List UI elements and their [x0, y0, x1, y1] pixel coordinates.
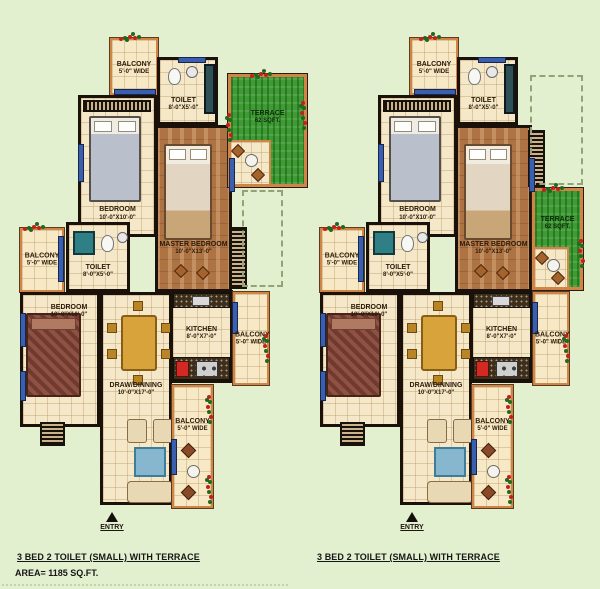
- bathtub-icon: [504, 64, 515, 114]
- window-icon: [232, 302, 238, 334]
- kitchen-balcony: BALCONY 5'-0" WIDE: [533, 292, 569, 385]
- window-icon: [478, 57, 506, 63]
- window-icon: [414, 89, 456, 95]
- wardrobe-icon: [83, 100, 151, 112]
- window-icon: [358, 236, 364, 282]
- room-label: BALCONY 5'-0" WIDE: [174, 417, 211, 434]
- toilet-wc-icon: [101, 235, 114, 252]
- room-label: MASTER BEDROOM 10'-0"X13'-0": [458, 240, 529, 257]
- plan-area-note: AREA= 1185 SQ.FT.: [15, 568, 98, 578]
- kitchen: KITCHEN 8'-0"X7'-0": [170, 290, 233, 383]
- planter-pot-icon: [181, 485, 197, 501]
- window-icon: [471, 439, 477, 475]
- stool-icon: [496, 266, 510, 280]
- chair-icon: [133, 301, 143, 311]
- master-bedroom: MASTER BEDROOM 10'-0"X13'-0": [455, 125, 532, 292]
- terrace-outline-dashed: [530, 75, 583, 185]
- wash-basin-icon: [186, 66, 198, 78]
- room-label: BALCONY 5'-0" WIDE: [474, 417, 511, 434]
- dining-table-icon: [421, 315, 457, 371]
- window-icon: [229, 158, 235, 192]
- sofa-icon: [427, 481, 473, 503]
- chair-icon: [107, 349, 117, 359]
- chair-icon: [133, 375, 143, 385]
- planter-pot-icon: [481, 485, 497, 501]
- room-label: TERRACE 62 SQFT.: [535, 215, 580, 232]
- window-icon: [529, 158, 535, 192]
- flower-planter-icon: [551, 186, 555, 190]
- double-bed-icon: [164, 144, 212, 240]
- toilet-wc-icon: [468, 68, 481, 85]
- stool-icon: [174, 264, 188, 278]
- red-cabinet-icon: [476, 361, 489, 377]
- bedroom-bottom: BEDROOM 10'-0"X10'-0": [320, 292, 400, 427]
- flower-planter-icon: [564, 334, 568, 338]
- flower-planter-icon: [32, 225, 36, 229]
- gas-stove-icon: [196, 361, 218, 377]
- patio-table-icon: [245, 154, 258, 167]
- window-icon: [114, 89, 156, 95]
- toilet-top: TOILET 8'-0"X5'-0": [157, 57, 218, 125]
- room-label: BALCONY 5'-0" WIDE: [22, 252, 62, 269]
- kitchen-sink-icon: [192, 296, 210, 306]
- room-label: BALCONY 5'-0" WIDE: [535, 330, 567, 347]
- chair-icon: [433, 375, 443, 385]
- armchair-icon: [153, 419, 173, 443]
- room-label: MASTER BEDROOM 10'-0"X13'-0": [158, 240, 229, 257]
- kitchen: KITCHEN 8'-0"X7'-0": [470, 290, 533, 383]
- toilet-wc-icon: [401, 235, 414, 252]
- armchair-icon: [127, 419, 147, 443]
- wardrobe-icon: [383, 100, 451, 112]
- flower-planter-icon: [264, 334, 268, 338]
- patio-chair-icon: [231, 144, 245, 158]
- chair-icon: [407, 349, 417, 359]
- floor-plan-sheet: { "palette": { "background": "#e3f0cf", …: [0, 0, 600, 589]
- toilet-middle: TOILET 8'-0"X5'-0": [366, 222, 430, 292]
- patio-table-icon: [487, 465, 500, 478]
- room-label: BALCONY 5'-0" WIDE: [322, 252, 362, 269]
- flower-planter-icon: [128, 35, 132, 39]
- room-label: KITCHEN 8'-0"X7'-0": [173, 325, 230, 342]
- draw-dining: DRAW/DINNING 10'-0"X17'-0": [100, 292, 172, 505]
- toilet-wc-icon: [168, 68, 181, 85]
- wash-basin-icon: [117, 232, 128, 243]
- entry-label: ENTRY: [90, 524, 134, 531]
- window-icon: [532, 302, 538, 334]
- patio-chair-icon: [251, 168, 265, 182]
- bedroom-top: BEDROOM 10'-0"X10'-0": [378, 95, 457, 237]
- room-label: TOILET 8'-0"X5'-0": [69, 263, 127, 280]
- window-icon: [171, 439, 177, 475]
- flower-planter-icon: [207, 395, 211, 399]
- kitchen-sink-icon: [492, 296, 510, 306]
- double-bed-icon: [89, 116, 141, 202]
- bedroom-bottom: BEDROOM 10'-0"X10'-0": [20, 292, 100, 427]
- terrace-outline-dashed: [242, 190, 283, 287]
- balcony-left: BALCONY 5'-0" WIDE: [320, 228, 364, 292]
- balcony-bottom: BALCONY 5'-0" WIDE: [472, 385, 513, 508]
- chair-icon: [433, 301, 443, 311]
- toilet-top: TOILET 8'-0"X5'-0": [457, 57, 518, 125]
- window-icon: [20, 371, 26, 401]
- flower-planter-icon: [301, 101, 305, 105]
- dining-table-icon: [121, 315, 157, 371]
- room-label: BEDROOM 10'-0"X10'-0": [81, 205, 154, 222]
- gas-stove-icon: [496, 361, 518, 377]
- room-label: BALCONY 5'-0" WIDE: [235, 330, 267, 347]
- balcony-top: BALCONY 5'-0" WIDE: [110, 38, 158, 95]
- balcony-top: BALCONY 5'-0" WIDE: [410, 38, 458, 95]
- window-icon: [58, 236, 64, 282]
- coffee-table-icon: [134, 447, 166, 477]
- shower-icon: [373, 231, 395, 255]
- double-bed-icon: [464, 144, 512, 240]
- stool-icon: [196, 266, 210, 280]
- divider: [2, 584, 288, 586]
- wash-basin-icon: [417, 232, 428, 243]
- flower-planter-icon: [207, 475, 211, 479]
- room-label: TOILET 8'-0"X5'-0": [369, 263, 427, 280]
- plan-caption-left: 3 BED 2 TOILET (SMALL) WITH TERRACE: [17, 552, 200, 562]
- window-icon: [78, 144, 84, 182]
- kitchen-counter-icon: [173, 293, 230, 308]
- terrace: TERRACE 62 SQFT.: [228, 74, 307, 187]
- room-label: TERRACE 62 SQFT.: [231, 109, 304, 126]
- flower-planter-icon: [579, 239, 583, 243]
- terrace-patio: [231, 140, 271, 184]
- chair-icon: [107, 323, 117, 333]
- master-bedroom: MASTER BEDROOM 10'-0"X13'-0": [155, 125, 232, 292]
- kitchen-counter-icon: [173, 357, 230, 380]
- kitchen-counter-icon: [473, 357, 530, 380]
- terrace: TERRACE 62 SQFT.: [532, 188, 583, 290]
- flower-planter-icon: [227, 113, 231, 117]
- stool-icon: [474, 264, 488, 278]
- flower-planter-icon: [259, 72, 263, 76]
- bathtub-icon: [204, 64, 215, 114]
- window-icon: [20, 313, 26, 347]
- flower-planter-icon: [507, 475, 511, 479]
- room-label: BEDROOM 10'-0"X10'-0": [381, 205, 454, 222]
- floor-plan-left: BALCONY 5'-0" WIDE TOILET 8'-0"X5'-0" BE…: [20, 38, 310, 538]
- draw-dining: DRAW/DINNING 10'-0"X17'-0": [400, 292, 472, 505]
- flower-planter-icon: [428, 35, 432, 39]
- chair-icon: [407, 323, 417, 333]
- patio-table-icon: [187, 465, 200, 478]
- window-icon: [378, 144, 384, 182]
- planter-pot-icon: [481, 443, 497, 459]
- window-icon: [320, 371, 326, 401]
- sofa-icon: [127, 481, 173, 503]
- louver-ledge-icon: [340, 422, 365, 446]
- balcony-bottom: BALCONY 5'-0" WIDE: [172, 385, 213, 508]
- planter-pot-icon: [181, 443, 197, 459]
- flower-planter-icon: [507, 395, 511, 399]
- entry-arrow-icon: [106, 512, 118, 522]
- toilet-middle: TOILET 8'-0"X5'-0": [66, 222, 130, 292]
- coffee-table-icon: [434, 447, 466, 477]
- plan-caption-right: 3 BED 2 TOILET (SMALL) WITH TERRACE: [317, 552, 500, 562]
- floor-plan-right: BALCONY 5'-0" WIDE TOILET 8'-0"X5'-0" BE…: [320, 38, 600, 538]
- room-label: KITCHEN 8'-0"X7'-0": [473, 325, 530, 342]
- entry-arrow-icon: [406, 512, 418, 522]
- patio-chair-icon: [551, 271, 565, 285]
- red-cabinet-icon: [176, 361, 189, 377]
- room-label: BALCONY 5'-0" WIDE: [412, 60, 456, 77]
- shower-icon: [73, 231, 95, 255]
- double-bed-icon: [389, 116, 441, 202]
- bedroom-top: BEDROOM 10'-0"X10'-0": [78, 95, 157, 237]
- balcony-left: BALCONY 5'-0" WIDE: [20, 228, 64, 292]
- window-icon: [320, 313, 326, 347]
- window-icon: [178, 57, 206, 63]
- double-bed-icon: [26, 313, 81, 397]
- terrace-patio: [535, 247, 569, 287]
- wash-basin-icon: [486, 66, 498, 78]
- double-bed-icon: [326, 313, 381, 397]
- entry-label: ENTRY: [390, 524, 434, 531]
- armchair-icon: [453, 419, 473, 443]
- flower-planter-icon: [332, 225, 336, 229]
- room-label: BALCONY 5'-0" WIDE: [112, 60, 156, 77]
- louver-ledge-icon: [40, 422, 65, 446]
- kitchen-counter-icon: [473, 293, 530, 308]
- kitchen-balcony: BALCONY 5'-0" WIDE: [233, 292, 269, 385]
- armchair-icon: [427, 419, 447, 443]
